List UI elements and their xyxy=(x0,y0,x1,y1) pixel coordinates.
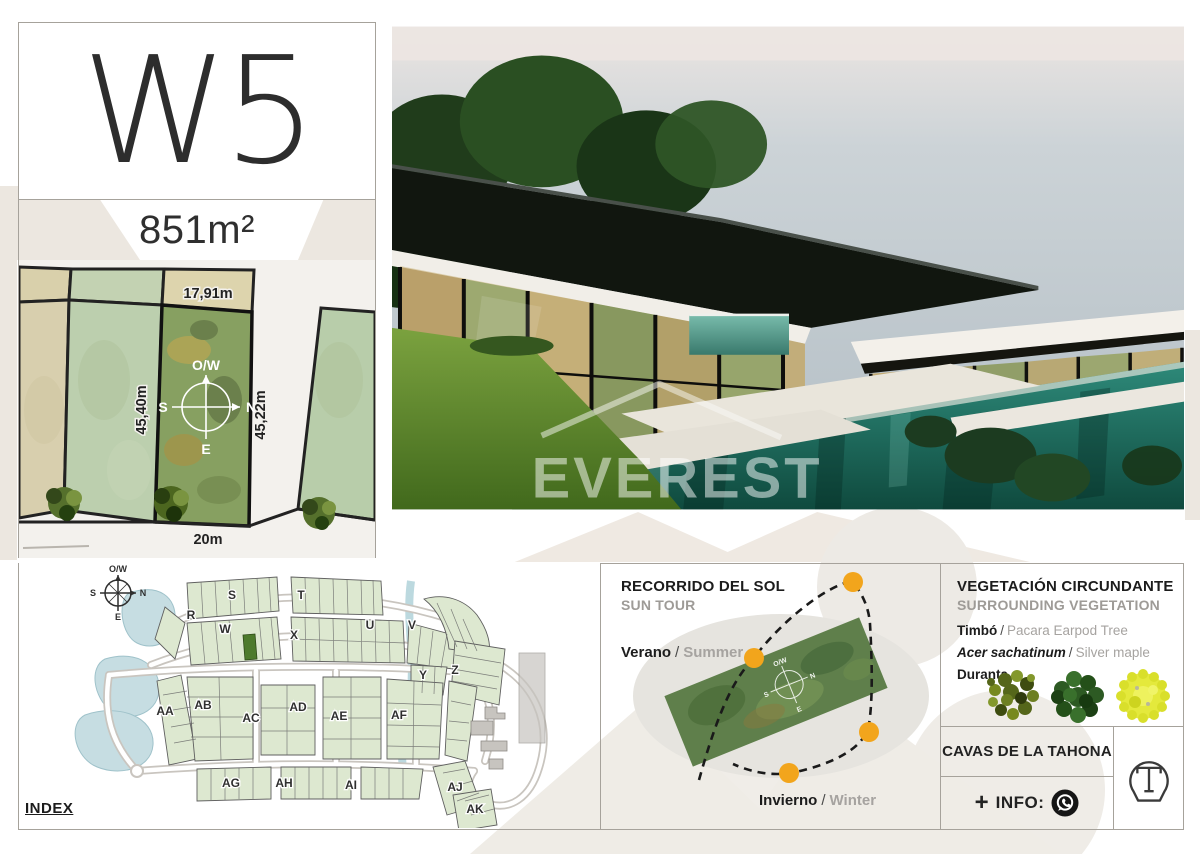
winter-es: Invierno xyxy=(759,792,817,809)
plot-card: W5 851m² xyxy=(18,22,376,558)
compass-label: S xyxy=(90,588,96,598)
lot-id: W5 xyxy=(82,37,313,185)
tree-icons xyxy=(941,664,1185,728)
section-label[interactable]: T xyxy=(297,588,305,602)
plot-map: O/W N S E 17,91m 45,40m 45,22m 20m xyxy=(19,260,375,558)
tahona-logo-icon xyxy=(1121,743,1177,813)
species-common-name: Silver maple xyxy=(1076,645,1150,660)
maple-tree-icon xyxy=(1051,671,1104,723)
sun-tour-panel: O/W N S E RECORRIDO DEL SOL SUN TOUR Ver… xyxy=(600,563,940,830)
compass-label: E xyxy=(201,441,210,457)
section-label[interactable]: R xyxy=(187,608,196,622)
vegetation-subtitle: SURROUNDING VEGETATION xyxy=(957,597,1174,615)
section-label[interactable]: U xyxy=(366,618,375,632)
highlighted-plot[interactable] xyxy=(243,634,257,660)
compass-label: O/W xyxy=(109,564,128,574)
lot-area-row: 851m² xyxy=(19,200,375,261)
sun-tour-subtitle: SUN TOUR xyxy=(621,597,785,615)
section-label[interactable]: AA xyxy=(156,704,174,718)
summer-label: Verano/Summer xyxy=(621,644,743,661)
compass-label: S xyxy=(158,399,167,415)
section-label[interactable]: AB xyxy=(194,698,212,712)
compass-label: O/W xyxy=(192,357,221,373)
timbo-tree-icon xyxy=(987,670,1039,720)
lot-id-row: W5 xyxy=(19,23,375,200)
section-label[interactable]: AC xyxy=(242,711,260,725)
index-label[interactable]: INDEX xyxy=(25,800,73,817)
info-cell: + INFO: xyxy=(940,777,1114,830)
species-name: Acer sachatinum xyxy=(957,645,1066,660)
section-label[interactable]: X xyxy=(290,628,298,642)
section-label[interactable]: W xyxy=(219,622,231,636)
vegetation-title: VEGETACIÓN CIRCUNDANTE xyxy=(957,578,1174,597)
vegetation-item: Timbó/Pacara Earpod Tree xyxy=(957,620,1150,642)
section-label[interactable]: AG xyxy=(222,776,240,790)
section-label[interactable]: Z xyxy=(451,663,458,677)
background-watermark xyxy=(0,260,17,560)
plus-icon: + xyxy=(975,791,989,815)
separator: / xyxy=(997,623,1007,638)
section-label[interactable]: Y xyxy=(419,668,427,682)
sun-tour-title: RECORRIDO DEL SOL xyxy=(621,578,785,597)
winter-en: Winter xyxy=(830,792,877,809)
section-label[interactable]: AJ xyxy=(447,780,462,794)
brochure-page: W5 851m² xyxy=(0,0,1200,854)
summer-en: Summer xyxy=(683,644,743,661)
section-label[interactable]: AK xyxy=(466,802,484,816)
brand-cell: CAVAS DE LA TAHONA xyxy=(940,727,1114,777)
winter-label: Invierno/Winter xyxy=(759,792,876,809)
dimension-left: 45,40m xyxy=(134,385,150,434)
masterplan-index-panel: O/W N S E R S T U V W X Y Z AA AB AC AD … xyxy=(18,563,600,830)
house-render: EVEREST REAL ESTATE xyxy=(392,26,1184,510)
glass-balustrade xyxy=(689,315,789,355)
section-label[interactable]: AE xyxy=(331,709,348,723)
compass-label: N xyxy=(140,588,147,598)
house-photo: EVEREST REAL ESTATE xyxy=(392,26,1184,510)
section-label[interactable]: AD xyxy=(289,700,307,714)
separator: / xyxy=(1066,645,1076,660)
duranta-tree-icon xyxy=(1116,669,1170,723)
section-label[interactable]: AF xyxy=(391,708,407,722)
section-label[interactable]: S xyxy=(228,588,236,602)
separator: / xyxy=(671,644,683,661)
info-label: INFO: xyxy=(996,793,1045,813)
vegetation-panel: VEGETACIÓN CIRCUNDANTE SURROUNDING VEGET… xyxy=(940,563,1184,727)
summer-es: Verano xyxy=(621,644,671,661)
brand-name: CAVAS DE LA TAHONA xyxy=(942,743,1112,760)
section-label[interactable]: V xyxy=(408,618,416,632)
lot-area: 851m² xyxy=(139,208,255,253)
background-watermark xyxy=(1185,330,1200,520)
vegetation-item: Acer sachatinum/Silver maple xyxy=(957,642,1150,664)
watermark-title: EVEREST xyxy=(532,446,823,510)
masterplan-map: O/W N S E R S T U V W X Y Z AA AB AC AD … xyxy=(19,563,599,828)
section-label[interactable]: AH xyxy=(275,776,292,790)
dimension-bottom: 20m xyxy=(193,532,222,548)
species-common-name: Pacara Earpod Tree xyxy=(1007,623,1128,638)
logo-cell xyxy=(1114,727,1184,830)
section-label[interactable]: AI xyxy=(345,778,357,792)
plot-map-drawing: O/W N S E 17,91m 45,40m 45,22m 20m xyxy=(19,260,375,558)
species-name: Timbó xyxy=(957,623,997,638)
compass-label: E xyxy=(115,612,121,622)
whatsapp-icon[interactable] xyxy=(1051,789,1079,817)
dimension-right: 45,22m xyxy=(253,390,269,439)
dimension-top: 17,91m xyxy=(183,286,232,302)
separator: / xyxy=(817,792,829,809)
